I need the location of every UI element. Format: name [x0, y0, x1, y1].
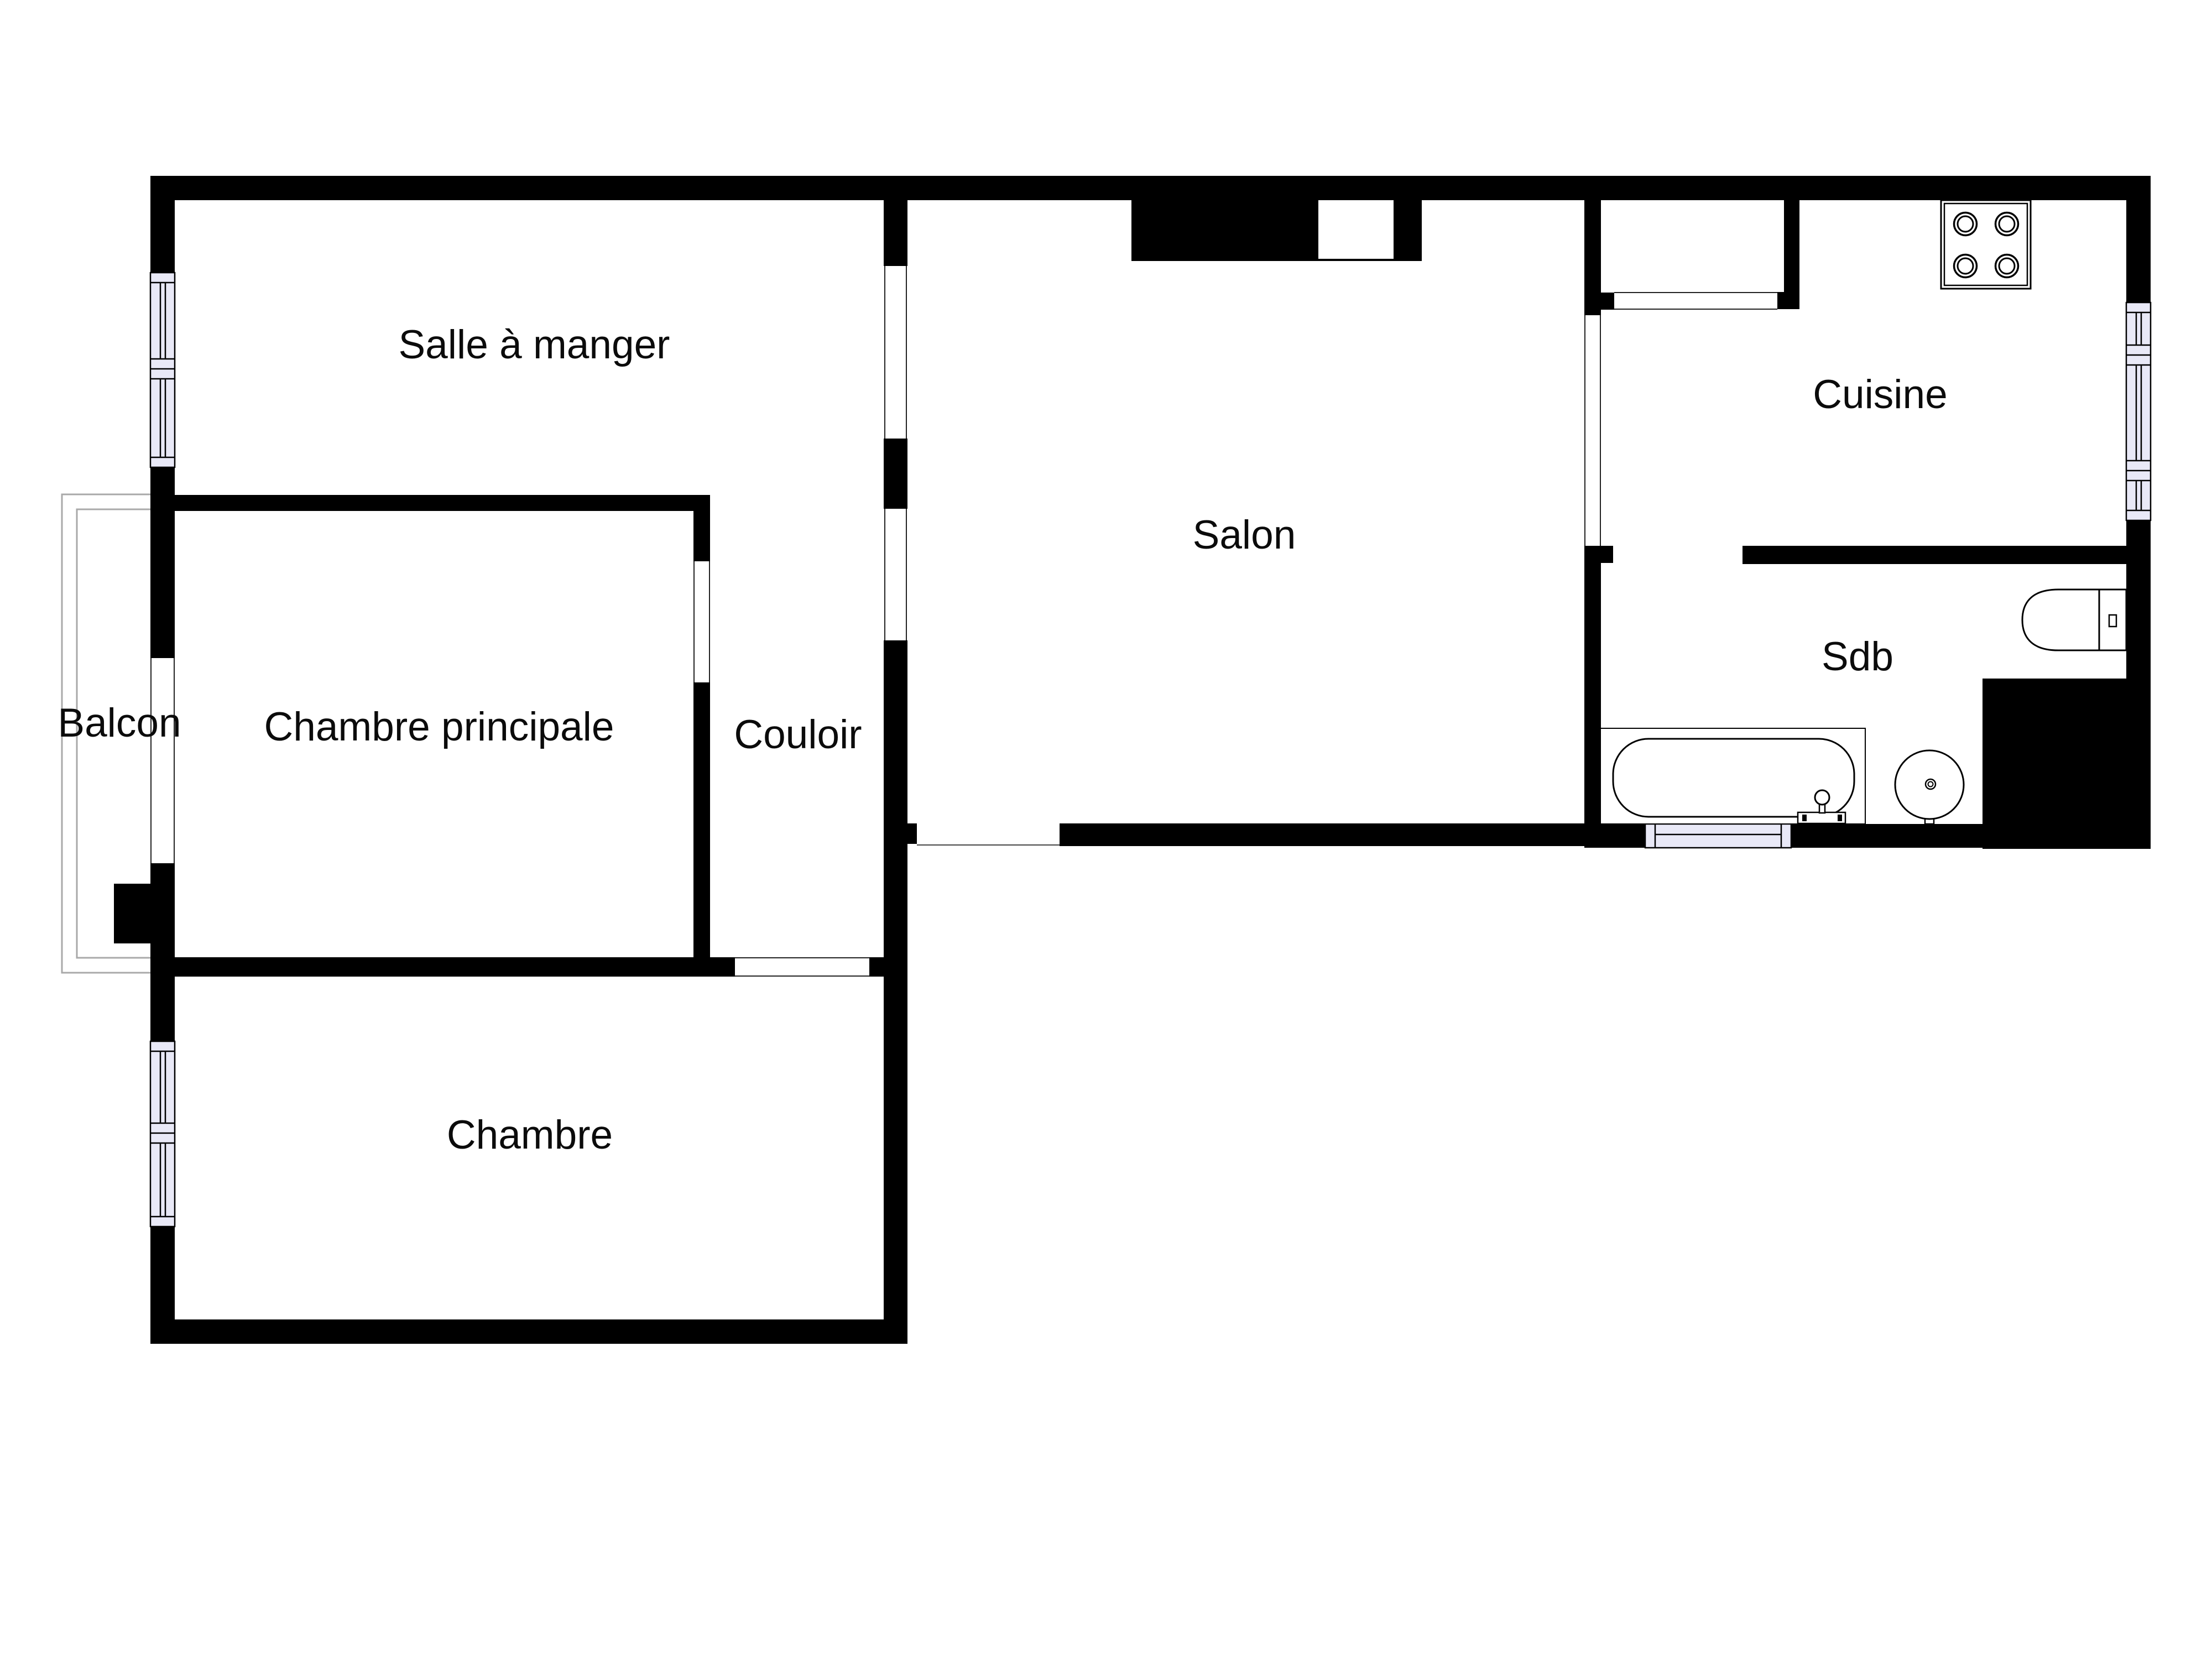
svg-text:Cuisine: Cuisine [1813, 372, 1947, 417]
svg-text:Chambre principale: Chambre principale [264, 705, 614, 749]
svg-text:Salon: Salon [1193, 513, 1296, 557]
svg-text:Couloir: Couloir [734, 712, 862, 757]
svg-text:Chambre: Chambre [447, 1113, 613, 1157]
svg-text:Sdb: Sdb [1822, 634, 1893, 679]
svg-text:Salle à manger: Salle à manger [398, 322, 670, 367]
svg-text:Balcon: Balcon [58, 701, 181, 745]
